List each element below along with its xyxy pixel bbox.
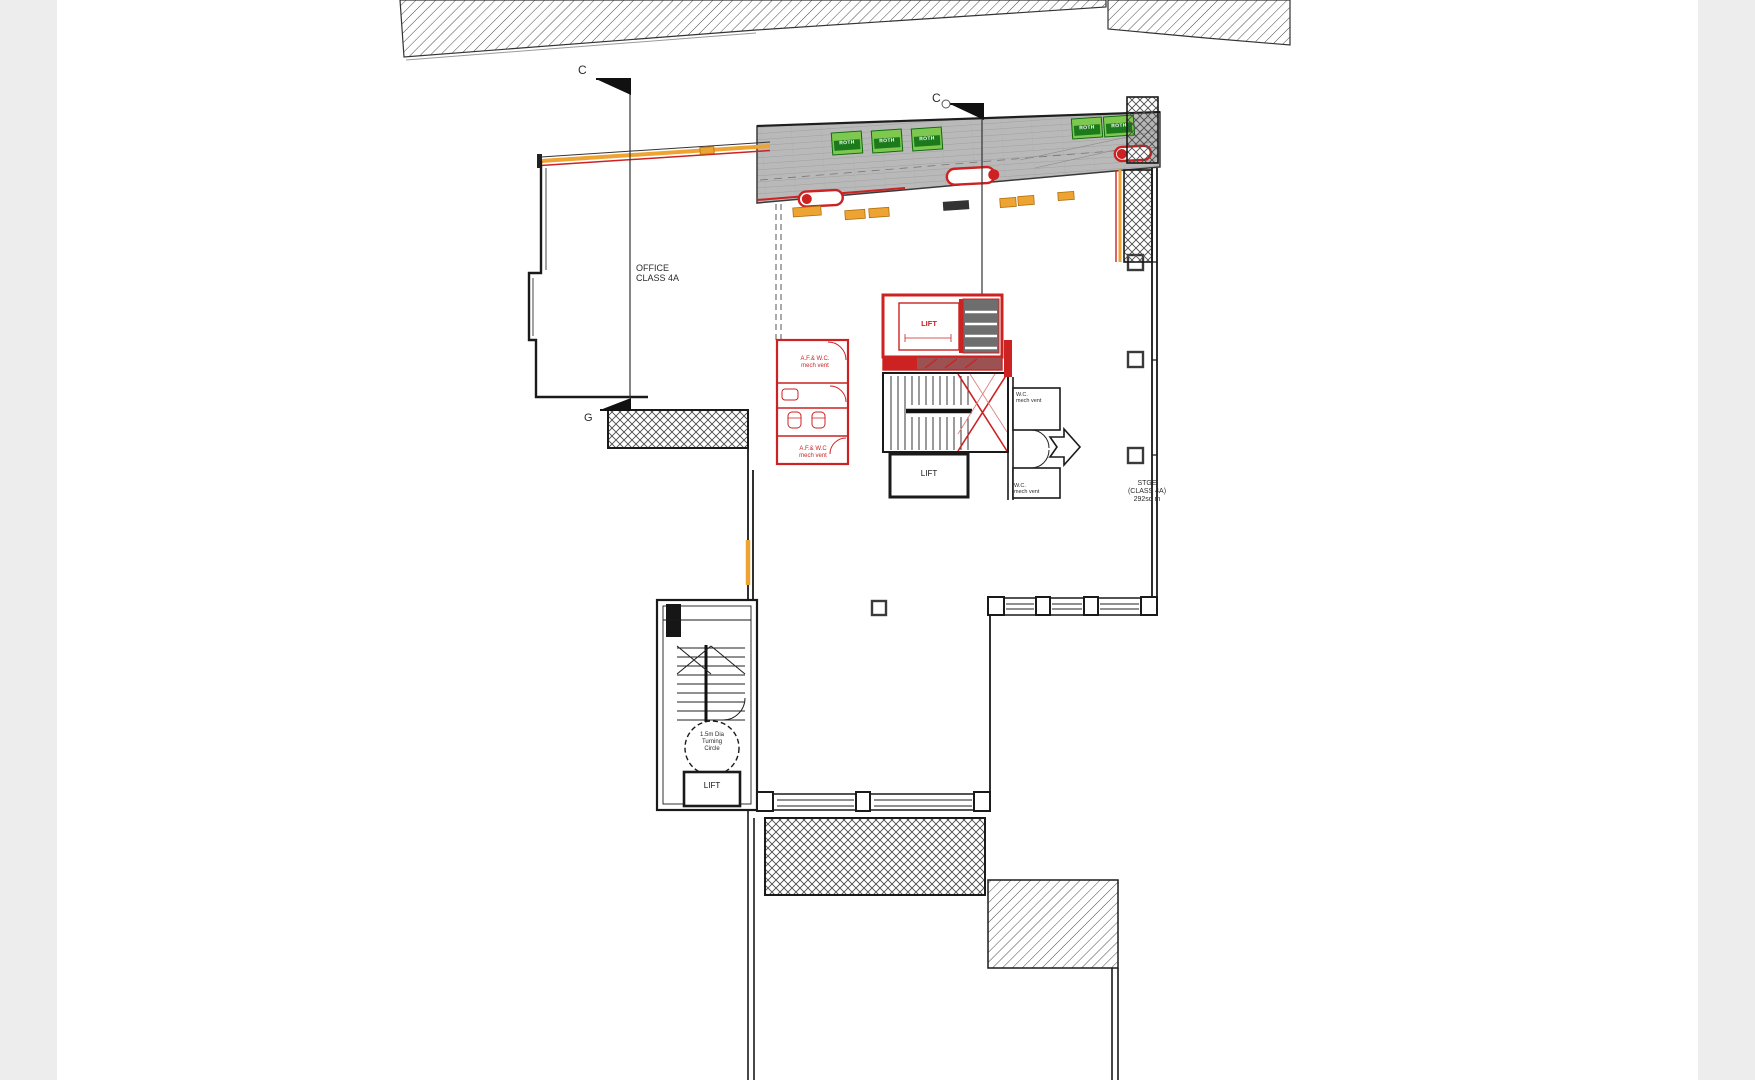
section-line-c-left <box>596 79 631 410</box>
wc-upper-label: W.C. mech vent <box>1016 392 1041 405</box>
floor-plan-drawing <box>0 0 1755 1080</box>
af-wc-upper-label: A.F.& W.C. mech vent <box>786 356 844 370</box>
lift-shaft-red <box>883 295 1002 370</box>
left-lower-wall <box>748 448 753 600</box>
adjacent-building-hatch-right <box>1108 0 1290 45</box>
floor-plan-page: C G C OFFICE CLASS 4A A.F.& W.C. mech ve… <box>0 0 1755 1080</box>
office-window-band <box>537 142 770 168</box>
storage-room-label: STGE (CLASS 4A) 292sq m <box>1112 480 1182 504</box>
af-wc-lower-label: A.F.& W.C mech vent <box>784 446 842 460</box>
main-stair <box>883 373 1008 452</box>
stair-tower <box>657 600 757 810</box>
storage-bottom-wall <box>988 597 1157 796</box>
lower-bottom-wall <box>757 792 990 811</box>
adjacent-building-hatch-left <box>400 0 1106 60</box>
office-room-label: OFFICE CLASS 4A <box>636 263 679 284</box>
wc-lower-label: W.C. mech vent <box>1014 483 1039 496</box>
courtyard-hatch-block <box>608 410 748 448</box>
section-marker-c-right-label: C <box>932 92 941 106</box>
entrance-lobby <box>1004 340 1080 500</box>
office-room-label-line1: OFFICE <box>636 263 679 273</box>
turning-circle-label: 1.5m Dia Turning Circle <box>686 732 738 753</box>
lift-lower-label: LIFT <box>892 469 966 478</box>
core-dashed-lines <box>776 204 781 340</box>
lift-core-label: LIFT <box>903 320 955 329</box>
entrance-direction-arrow <box>1050 429 1080 465</box>
bottom-terrace-hatch <box>765 818 985 895</box>
section-marker-g-label: G <box>584 412 593 425</box>
section-marker-c-left-label: C <box>578 64 587 78</box>
right-perimeter-wall <box>1116 97 1158 600</box>
lift-tower-label: LIFT <box>686 781 738 790</box>
office-room-label-line2: CLASS 4A <box>636 273 679 283</box>
